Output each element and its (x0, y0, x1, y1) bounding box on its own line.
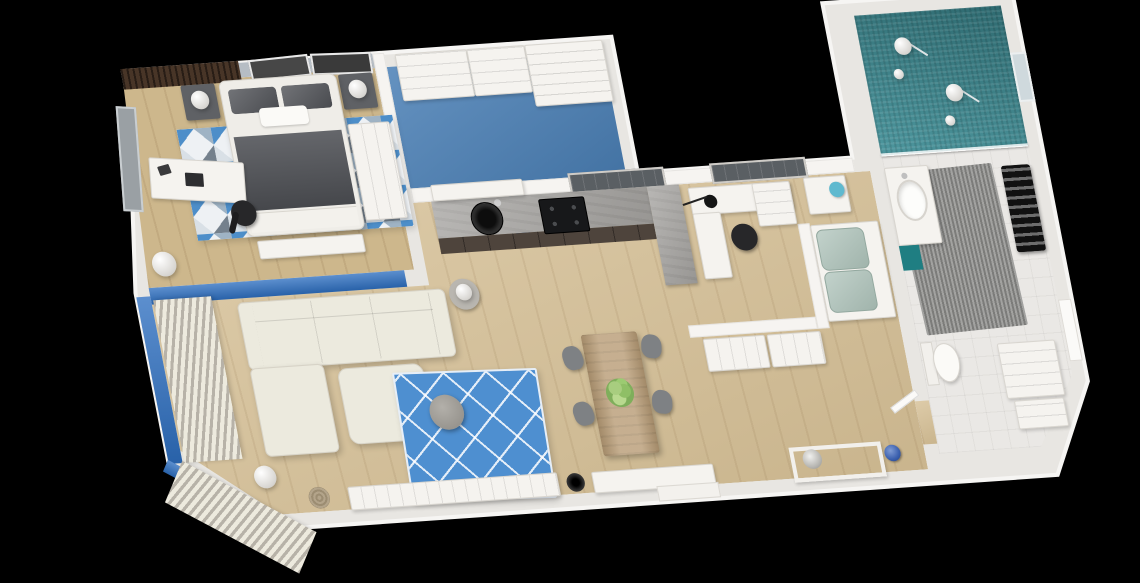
hall-sideboard-1 (703, 335, 771, 372)
office-desk-drawers (751, 181, 797, 227)
corner-sofa-main (236, 288, 457, 370)
guest-cabinet (803, 175, 852, 215)
sofa-seat-seams (252, 292, 442, 366)
render-stage (0, 0, 1140, 572)
closet-drawer-unit-2 (466, 45, 533, 96)
closet-open-shelves (524, 40, 614, 107)
loveseat-cushion-2 (823, 269, 879, 313)
apartment-plan (69, 0, 1117, 570)
bed-blanket (234, 130, 356, 212)
bed-cushion-white (258, 105, 309, 127)
desk-lamp (157, 164, 172, 176)
closet-drawer-unit-1 (394, 49, 475, 101)
loveseat-cushion-1 (815, 227, 871, 271)
bath-drawer-unit (1014, 397, 1069, 429)
gas-hob (538, 196, 591, 234)
washer-cabinet (997, 339, 1066, 399)
vanity-faucet (901, 173, 908, 180)
hall-sideboard-2 (766, 331, 826, 368)
shower-zone (854, 5, 1028, 155)
laptop (185, 173, 204, 187)
wall-art-frame-2 (310, 52, 374, 76)
bedroom-desk (148, 157, 246, 203)
